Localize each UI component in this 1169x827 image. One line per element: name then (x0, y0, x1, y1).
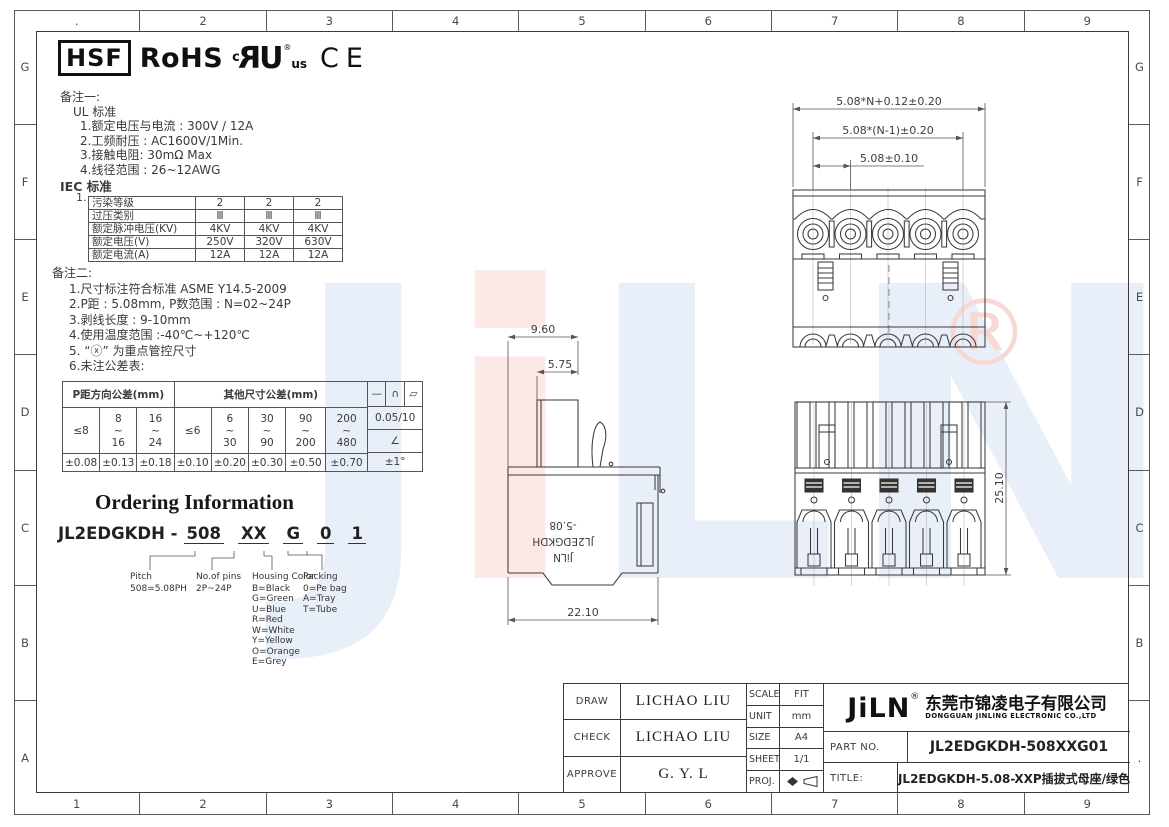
note-line: 1.尺寸标注符合标准 ASME Y14.5-2009 (52, 282, 291, 298)
note-line: 2.工频耐压 : AC1600V/1Min. (60, 134, 253, 149)
dim-pitch-span: 5.08*(N-1)±0.20 (842, 124, 933, 137)
title-label: TITLE: (824, 763, 898, 793)
part-no-value: JL2EDGKDH-508XXG01 (908, 732, 1130, 762)
notes-dimension-standard: 备注二:1.尺寸标注符合标准 ASME Y14.5-20092.P距 : 5.0… (52, 266, 291, 375)
callout-packing: Packing0=Pe bagA=TrayT=Tube (303, 572, 347, 615)
sheet-label: SHEET (747, 749, 780, 770)
grid-ref-label: C (1129, 470, 1150, 585)
drawing-sheet: JiLN ® .23456789 123456789 GFEDCBA GFEDC… (0, 0, 1169, 827)
tolerance-value-cell: ±0.13 (100, 454, 137, 472)
ul-registered: ® (283, 43, 291, 52)
grid-ref-label: . (1129, 700, 1150, 815)
tolerance-header: P距方向公差(mm) (63, 382, 175, 408)
grid-ref-label: A (14, 700, 36, 815)
callout-option: T=Tube (303, 605, 347, 616)
iec-value-cell: 12A (245, 249, 294, 262)
approve-name: G. Y. L (621, 757, 746, 792)
callout-option: E=Grey (252, 657, 315, 668)
grid-ref-label: B (14, 585, 36, 700)
iec-value-cell: 12A (294, 249, 343, 262)
callout-label: No.of pins (196, 572, 241, 583)
unit-label: UNIT (747, 706, 780, 727)
tolerance-value-cell: ±0.10 (174, 454, 211, 472)
iec-label-cell: 额定脉冲电压(KV) (89, 223, 196, 236)
tolerance-range-cell: 200 ~ 480 (326, 408, 368, 454)
dim-depth-outer: 9.60 (531, 323, 556, 336)
angle-tolerance-value: ±1° (368, 453, 422, 471)
tolerance-value-cell: ±0.30 (248, 454, 285, 472)
ordering-segment: XX (238, 524, 269, 544)
callout-label: Pitch (130, 572, 187, 583)
title-block-signatures: DRAWLICHAO LIU CHECKLICHAO LIU APPROVEG.… (564, 684, 746, 792)
grid-ref-label: D (14, 354, 36, 469)
tolerance-value-cell: ±0.20 (211, 454, 248, 472)
check-name: LICHAO LIU (621, 720, 746, 755)
projection-label: PROJ. (747, 771, 780, 792)
callout-option: A=Tray (303, 594, 347, 605)
title-block-specs: SCALEFIT UNITmm SIZEA4 SHEET1/1 PROJ. (746, 684, 823, 792)
note-line: 备注二: (52, 266, 291, 282)
ordering-segment: 0 (317, 524, 334, 544)
iec-value-cell: 2 (294, 197, 343, 210)
part-no-label: PART NO. (824, 732, 908, 762)
callout-label: Packing (303, 572, 347, 583)
scale-label: SCALE (747, 684, 780, 705)
note-line: 1.额定电压与电流 : 300V / 12A (60, 119, 253, 134)
ul-us: us (291, 57, 307, 71)
side-view-drawing: 9.60 5.75 JiLN JL2EDGKDH -5.08 22.10 (483, 323, 701, 645)
title-value: JL2EDGKDH-5.08-XXP插拔式母座/绿色 (898, 763, 1130, 793)
other-tolerance-table: 其他尺寸公差(mm)≤66 ~ 3030 ~ 9090 ~ 200200 ~ 4… (174, 381, 369, 472)
ordering-code: JL2EDGKDH - 508XXG01 (58, 524, 366, 544)
iec-value-cell: Ⅲ (294, 210, 343, 223)
note-line: 3.剥线长度 : 9-10mm (52, 313, 291, 329)
grid-ref-label: 7 (771, 793, 897, 815)
note-line: 2.P距 : 5.08mm, P数范围 : N=02~24P (52, 297, 291, 313)
grid-ref-label: E (1129, 239, 1150, 354)
grid-ref-label: C (14, 470, 36, 585)
ul-mark-glyph: UR (240, 41, 283, 76)
unit-value: mm (780, 706, 823, 727)
title-block-company: JiLN® 东莞市锦凌电子有限公司 DONGGUAN JINLING ELECT… (823, 684, 1130, 792)
note-line: 4.线径范围 : 26~12AWG (60, 163, 253, 178)
molded-marking-pitch: -5.08 (549, 519, 576, 531)
grid-ref-label: 5 (518, 10, 644, 31)
scale-value: FIT (780, 684, 823, 705)
dim-depth-inner: 5.75 (548, 358, 573, 371)
ordering-segment: 508 (184, 524, 224, 544)
tolerance-range-cell: 90 ~ 200 (286, 408, 326, 454)
parallelogram-icon: ▱ (404, 382, 422, 406)
grid-ref-label: 5 (518, 793, 644, 815)
dim-total-width: 5.08*N+0.12±0.20 (836, 95, 942, 108)
ul-c: c (232, 50, 240, 65)
iec-item-number: 1. (76, 191, 87, 204)
grid-ref-label: D (1129, 354, 1150, 469)
tolerance-range-cell: ≤6 (174, 408, 211, 454)
tolerance-value-cell: ±0.08 (63, 454, 100, 472)
dim-total-depth: 22.10 (567, 606, 599, 619)
tolerance-table: P距方向公差(mm)≤88 ~ 1616 ~ 24±0.08±0.13±0.18… (62, 381, 423, 472)
grid-ref-label: 2 (139, 793, 265, 815)
note-line: 6.未注公差表: (52, 359, 291, 375)
grid-ref-label: 2 (139, 10, 265, 31)
grid-ref-label: 3 (266, 793, 392, 815)
grid-ref-label: 4 (392, 793, 518, 815)
note-line: 备注一: (60, 90, 253, 105)
note-line: 4.使用温度范围 :-40℃~+120℃ (52, 328, 291, 344)
iec-value-cell: 2 (196, 197, 245, 210)
grid-ref-label: B (1129, 585, 1150, 700)
iec-label-cell: 额定电流(A) (89, 249, 196, 262)
grid-ref-label: 6 (645, 793, 771, 815)
iec-label-cell: 污染等级 (89, 197, 196, 210)
note-line: UL 标准 (60, 105, 253, 120)
approve-label: APPROVE (564, 757, 621, 792)
grid-ref-label: 4 (392, 10, 518, 31)
tolerance-range-cell: 16 ~ 24 (137, 408, 174, 454)
callout-option: 0=Pe bag (303, 584, 347, 595)
grid-refs-left: GFEDCBA (14, 10, 36, 815)
certification-marks: HSF RoHS cUR®us CE (58, 40, 370, 76)
callout-option: 2P~24P (196, 584, 241, 595)
grid-ref-label: E (14, 239, 36, 354)
ordering-segment: G (283, 524, 303, 544)
sheet-value: 1/1 (780, 749, 823, 770)
size-value: A4 (780, 728, 823, 749)
registered-icon: ® (910, 692, 920, 702)
title-block: DRAWLICHAO LIU CHECKLICHAO LIU APPROVEG.… (563, 683, 1129, 793)
iec-label-cell: 过压类别 (89, 210, 196, 223)
iec-value-cell: Ⅲ (196, 210, 245, 223)
iec-ratings-table: 污染等级222过压类别ⅢⅢⅢ额定脉冲电压(KV)4KV4KV4KV额定电压(V)… (88, 196, 343, 262)
tolerance-value-cell: ±0.70 (326, 454, 368, 472)
iec-value-cell: 630V (294, 236, 343, 249)
ul-recognized-icon: cUR®us (232, 41, 307, 76)
callout-pitch: Pitch508=5.08PH (130, 572, 187, 594)
callout-option: 508=5.08PH (130, 584, 187, 595)
tolerance-range-cell: ≤8 (63, 408, 100, 454)
callout-option: O=Orange (252, 647, 315, 658)
callout-pins: No.of pins2P~24P (196, 572, 241, 594)
notes-ul-standard: 备注一:UL 标准1.额定电压与电流 : 300V / 12A2.工频耐压 : … (60, 90, 253, 177)
tolerance-range-cell: 8 ~ 16 (100, 408, 137, 454)
hsf-logo: HSF (58, 40, 131, 76)
top-view-drawing: 5.08*N+0.12±0.20 5.08*(N-1)±0.20 5.08±0.… (772, 83, 1014, 360)
grid-refs-bottom: 123456789 (14, 793, 1150, 815)
grid-ref-label: 8 (897, 793, 1023, 815)
tolerance-range-cell: 30 ~ 90 (248, 408, 285, 454)
callout-option: R=Red (252, 615, 315, 626)
size-label: SIZE (747, 728, 780, 749)
grid-ref-label: 8 (897, 10, 1023, 31)
grid-refs-top: .23456789 (14, 10, 1150, 31)
rohs-logo: RoHS (140, 43, 223, 74)
front-view-drawing: 25.10 (773, 388, 1025, 595)
iec-label-cell: 额定电压(V) (89, 236, 196, 249)
grid-ref-label: G (1129, 10, 1150, 124)
iec-value-cell: 2 (245, 197, 294, 210)
tolerance-value-cell: ±0.50 (286, 454, 326, 472)
draw-label: DRAW (564, 684, 621, 719)
molded-marking-series: JL2EDGKDH (532, 535, 594, 547)
tolerance-symbol-column: — ∩ ▱ 0.05/10 ∠ ±1° (367, 381, 423, 472)
ce-mark-icon: CE (320, 43, 370, 74)
iec-value-cell: 4KV (294, 223, 343, 236)
iec-value-cell: Ⅲ (245, 210, 294, 223)
flatness-tolerance-value: 0.05/10 (368, 407, 422, 430)
callout-option: Y=Yellow (252, 636, 315, 647)
iec-value-cell: 12A (196, 249, 245, 262)
check-label: CHECK (564, 720, 621, 755)
iec-value-cell: 320V (245, 236, 294, 249)
grid-ref-label: G (14, 10, 36, 124)
ordering-callout-lines (100, 545, 340, 575)
ordering-information-title: Ordering Information (95, 490, 294, 515)
pitch-tolerance-table: P距方向公差(mm)≤88 ~ 1616 ~ 24±0.08±0.13±0.18 (62, 381, 175, 472)
grid-refs-right: GFEDCB. (1129, 10, 1150, 815)
grid-ref-label: 3 (266, 10, 392, 31)
dim-pitch: 5.08±0.10 (860, 152, 918, 165)
grid-ref-label: 7 (771, 10, 897, 31)
iec-value-cell: 250V (196, 236, 245, 249)
angle-icon: ∠ (368, 430, 422, 453)
ordering-segment: 1 (348, 524, 365, 544)
note-line: 5. “ⓧ” 为重点管控尺寸 (52, 344, 291, 360)
iec-value-cell: 4KV (196, 223, 245, 236)
dim-total-height: 25.10 (993, 472, 1006, 504)
grid-ref-label: F (1129, 124, 1150, 239)
projection-symbol-icon (780, 771, 823, 792)
straightness-icon: — (368, 382, 385, 406)
ordering-code-prefix: JL2EDGKDH - (58, 524, 178, 543)
tolerance-value-cell: ±0.18 (137, 454, 174, 472)
company-name-en: DONGGUAN JINLING ELECTRONIC CO.,LTD (925, 713, 1107, 720)
grid-ref-label: 6 (645, 10, 771, 31)
arc-icon: ∩ (385, 382, 403, 406)
company-name-cn: 东莞市锦凌电子有限公司 (925, 695, 1107, 712)
grid-ref-label: F (14, 124, 36, 239)
molded-marking-brand: JiLN (553, 551, 574, 563)
note-line: 3.接触电阻: 30mΩ Max (60, 148, 253, 163)
draw-name: LICHAO LIU (621, 684, 746, 719)
callout-option: W=White (252, 626, 315, 637)
tolerance-header: 其他尺寸公差(mm) (174, 382, 368, 408)
iec-value-cell: 4KV (245, 223, 294, 236)
tolerance-range-cell: 6 ~ 30 (211, 408, 248, 454)
jiln-logo: JiLN® (847, 693, 920, 722)
